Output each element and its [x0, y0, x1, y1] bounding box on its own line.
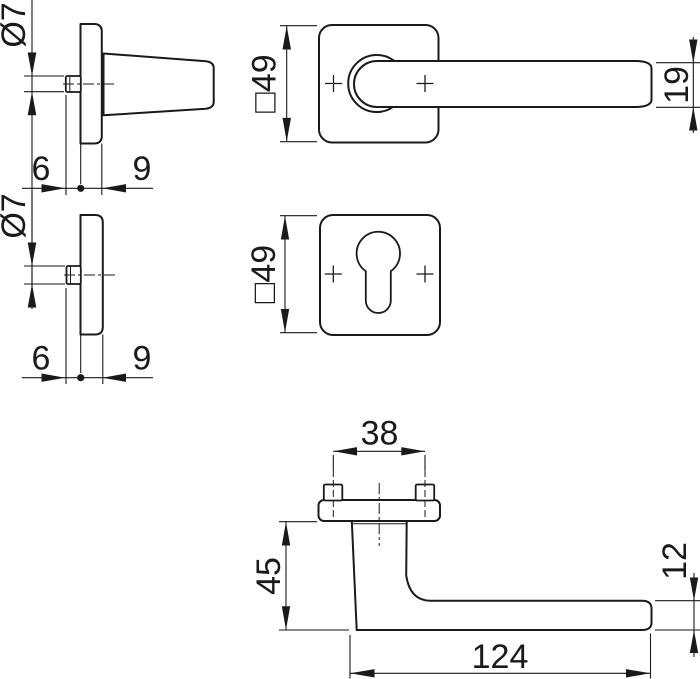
- dimension-projection: 45: [250, 522, 349, 630]
- arrowhead: [689, 107, 697, 130]
- dim-label-rose-size: □49: [245, 245, 283, 303]
- dim-label-spindle-diameter: Ø7: [0, 193, 33, 238]
- arrowhead: [282, 606, 290, 630]
- arrowhead: [283, 118, 292, 142]
- dim-label-rose-thickness: 9: [133, 150, 152, 188]
- arrowhead: [690, 578, 698, 601]
- dim-label-rose-size: □49: [246, 54, 284, 112]
- arrowhead: [334, 447, 358, 455]
- arrowhead: [689, 40, 697, 63]
- dimension-spindle-diameter: Ø7: [0, 190, 65, 309]
- dimension-lever-height: 19: [656, 37, 700, 133]
- drawing-canvas: Ø7 6 9 □49 19: [0, 0, 700, 679]
- arrowhead: [690, 630, 698, 653]
- arrowhead: [350, 669, 374, 677]
- dimension-lever-length: 124: [350, 634, 651, 679]
- arrowhead: [281, 216, 289, 240]
- lever-handle: [354, 61, 652, 107]
- arrowhead: [626, 669, 650, 677]
- arrowhead: [283, 26, 292, 50]
- dim-label-lever-height: 19: [658, 66, 696, 104]
- dim-label-projection: 45: [250, 557, 288, 595]
- dim-label-screw-spacing: 38: [361, 415, 399, 453]
- dim-label-rose-thickness: 9: [133, 340, 152, 378]
- dim-label-spindle-diameter: Ø7: [0, 2, 33, 47]
- view-handle-profile: 38 45 12 124: [250, 415, 700, 679]
- arrowhead: [28, 53, 37, 76]
- dimension-origin-dot: [77, 185, 84, 192]
- dim-label-protrusion: 6: [32, 150, 51, 188]
- technical-drawing-sheet: Ø7 6 9 □49 19: [0, 0, 700, 679]
- dimension-rose-size: □49: [245, 216, 317, 333]
- arrowhead: [401, 447, 425, 455]
- arrowhead: [28, 243, 37, 266]
- handle-neck-cone: [104, 54, 214, 116]
- dimension-rose-size: □49: [246, 26, 318, 142]
- view-escutcheon-side: Ø7 6 9: [0, 190, 153, 384]
- dim-label-lever-thickness: 12: [656, 542, 694, 580]
- dim-label-lever-length: 124: [472, 638, 529, 676]
- arrowhead: [282, 522, 290, 546]
- arrowhead: [28, 92, 37, 115]
- view-handle-front: □49 19: [246, 25, 700, 143]
- arrowhead: [281, 309, 289, 333]
- arrowhead: [28, 284, 37, 307]
- arrowhead: [102, 374, 126, 382]
- dim-label-protrusion: 6: [32, 340, 51, 378]
- view-escutcheon-front: □49: [245, 215, 440, 335]
- arrowhead: [102, 184, 126, 192]
- dimension-origin-dot: [77, 374, 84, 381]
- lever-profile: [352, 521, 652, 630]
- dimension-lever-thickness: 12: [655, 542, 700, 657]
- dimension-screw-spacing: 38: [333, 415, 425, 471]
